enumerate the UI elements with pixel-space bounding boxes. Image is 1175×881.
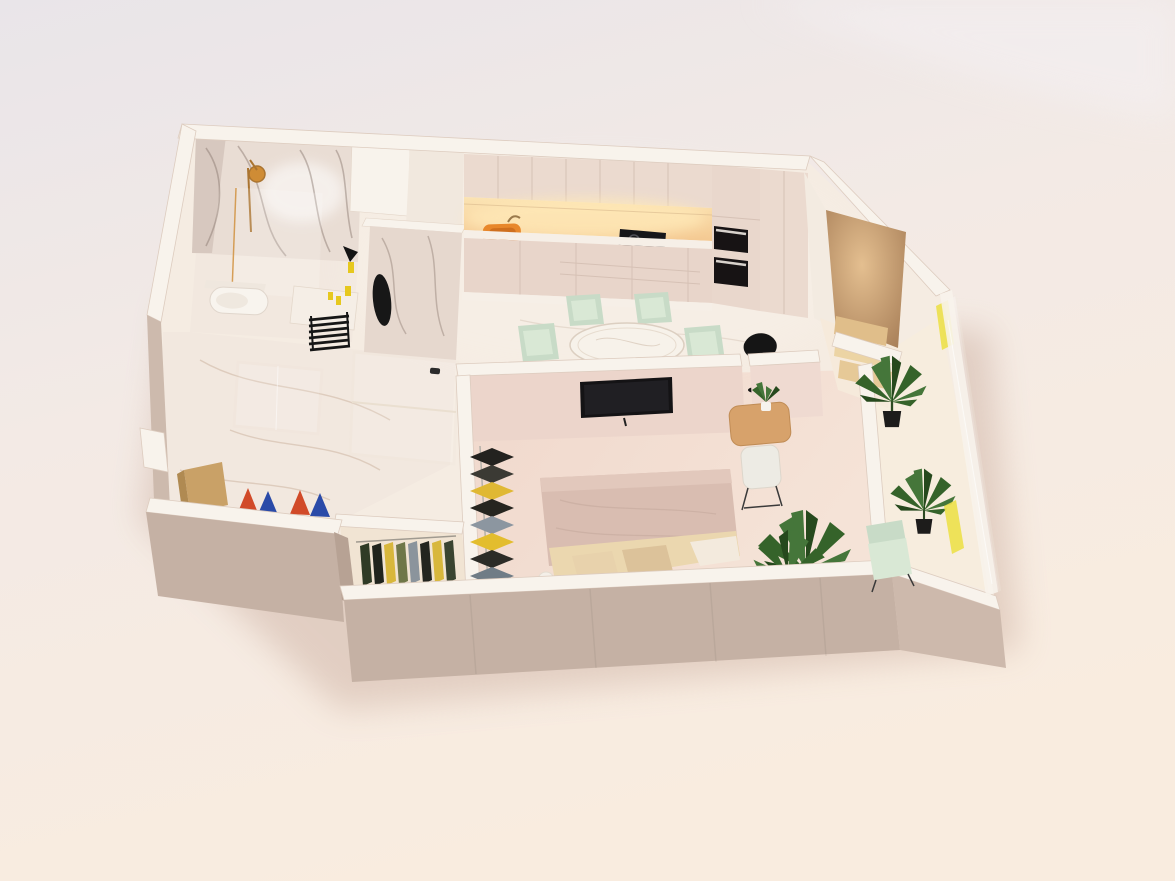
dining-chair bbox=[566, 294, 604, 326]
desk-plant-pot bbox=[761, 402, 771, 411]
white-column bbox=[350, 142, 410, 216]
floor-plan-svg bbox=[0, 0, 1175, 881]
left-wall-niche bbox=[140, 428, 168, 472]
toiletry-bottle bbox=[348, 262, 354, 273]
toiletry-bottle bbox=[328, 292, 333, 300]
toiletry-bottle bbox=[336, 296, 341, 305]
kitchen bbox=[462, 154, 808, 318]
desk bbox=[728, 401, 791, 446]
door-handle bbox=[430, 368, 440, 375]
floor-plan-render bbox=[0, 0, 1175, 881]
desk-chair bbox=[740, 444, 782, 489]
dining-chair bbox=[518, 323, 559, 362]
tv-screen bbox=[584, 380, 669, 415]
toiletry-bottle bbox=[345, 286, 351, 296]
shower-glass bbox=[232, 188, 322, 298]
dining-chair bbox=[634, 292, 672, 324]
kitchen-side-panel bbox=[406, 146, 464, 232]
balcony-chair-seat bbox=[868, 538, 912, 580]
